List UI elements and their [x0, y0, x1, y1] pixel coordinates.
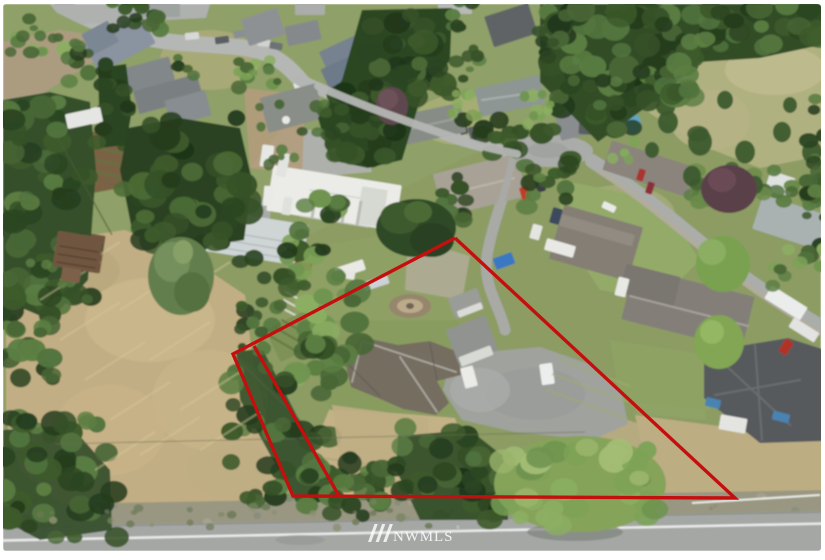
svg-text:NWMLS: NWMLS	[393, 529, 453, 545]
svg-text:®: ®	[456, 525, 460, 531]
